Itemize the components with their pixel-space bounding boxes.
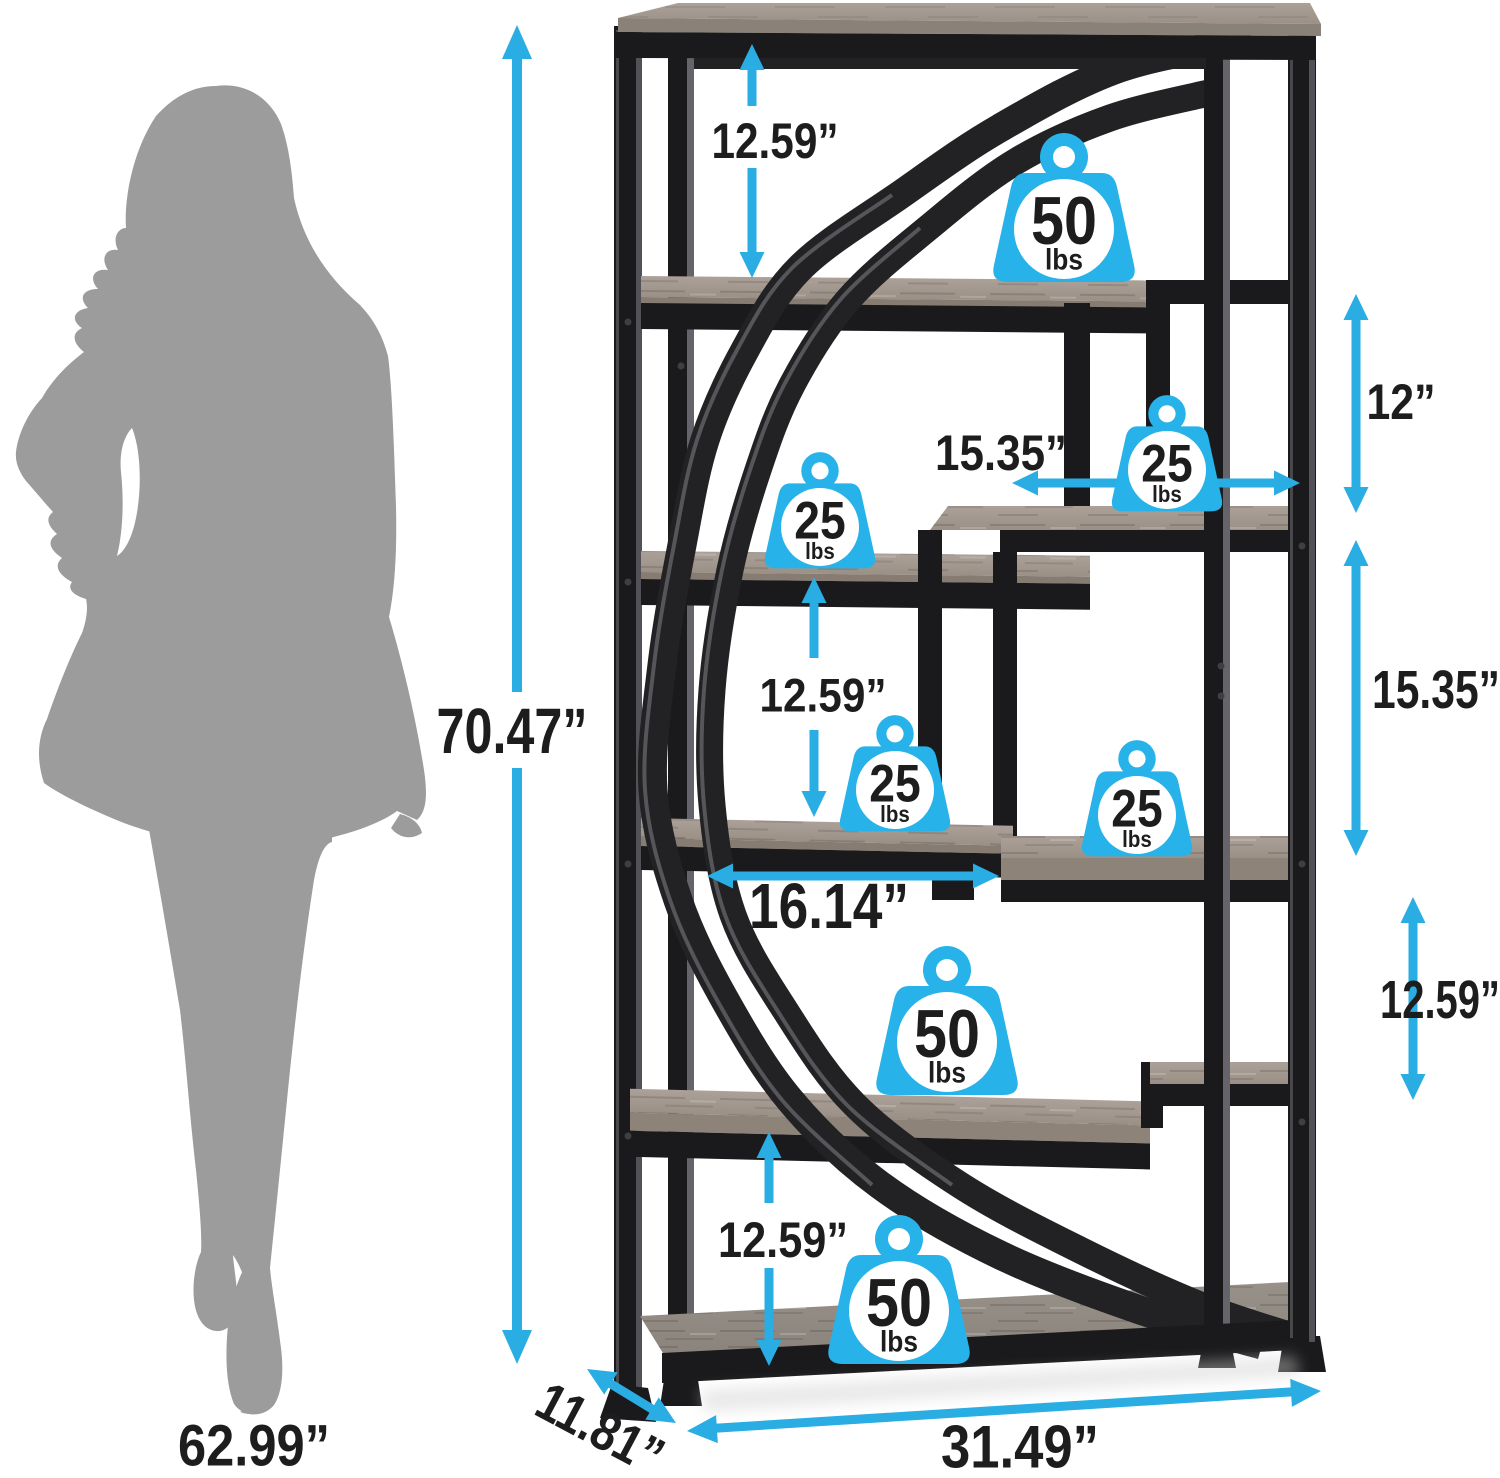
svg-text:12.59”: 12.59” (760, 669, 887, 722)
svg-text:70.47”: 70.47” (437, 695, 588, 767)
svg-text:lbs: lbs (928, 1057, 966, 1090)
svg-text:12”: 12” (1367, 374, 1436, 430)
svg-text:12.59”: 12.59” (712, 113, 839, 169)
svg-text:lbs: lbs (805, 538, 835, 564)
svg-text:62.99”: 62.99” (178, 1414, 330, 1478)
svg-text:12.59”: 12.59” (1380, 970, 1500, 1030)
svg-text:15.35”: 15.35” (935, 425, 1067, 481)
svg-text:16.14”: 16.14” (749, 870, 909, 942)
svg-text:lbs: lbs (1152, 481, 1182, 507)
svg-text:31.49”: 31.49” (941, 1414, 1099, 1478)
svg-text:12.59”: 12.59” (718, 1212, 848, 1268)
svg-text:lbs: lbs (1045, 244, 1083, 277)
svg-text:15.35”: 15.35” (1372, 660, 1500, 720)
svg-text:lbs: lbs (880, 1326, 918, 1359)
svg-text:lbs: lbs (880, 801, 910, 827)
svg-text:lbs: lbs (1122, 826, 1152, 852)
